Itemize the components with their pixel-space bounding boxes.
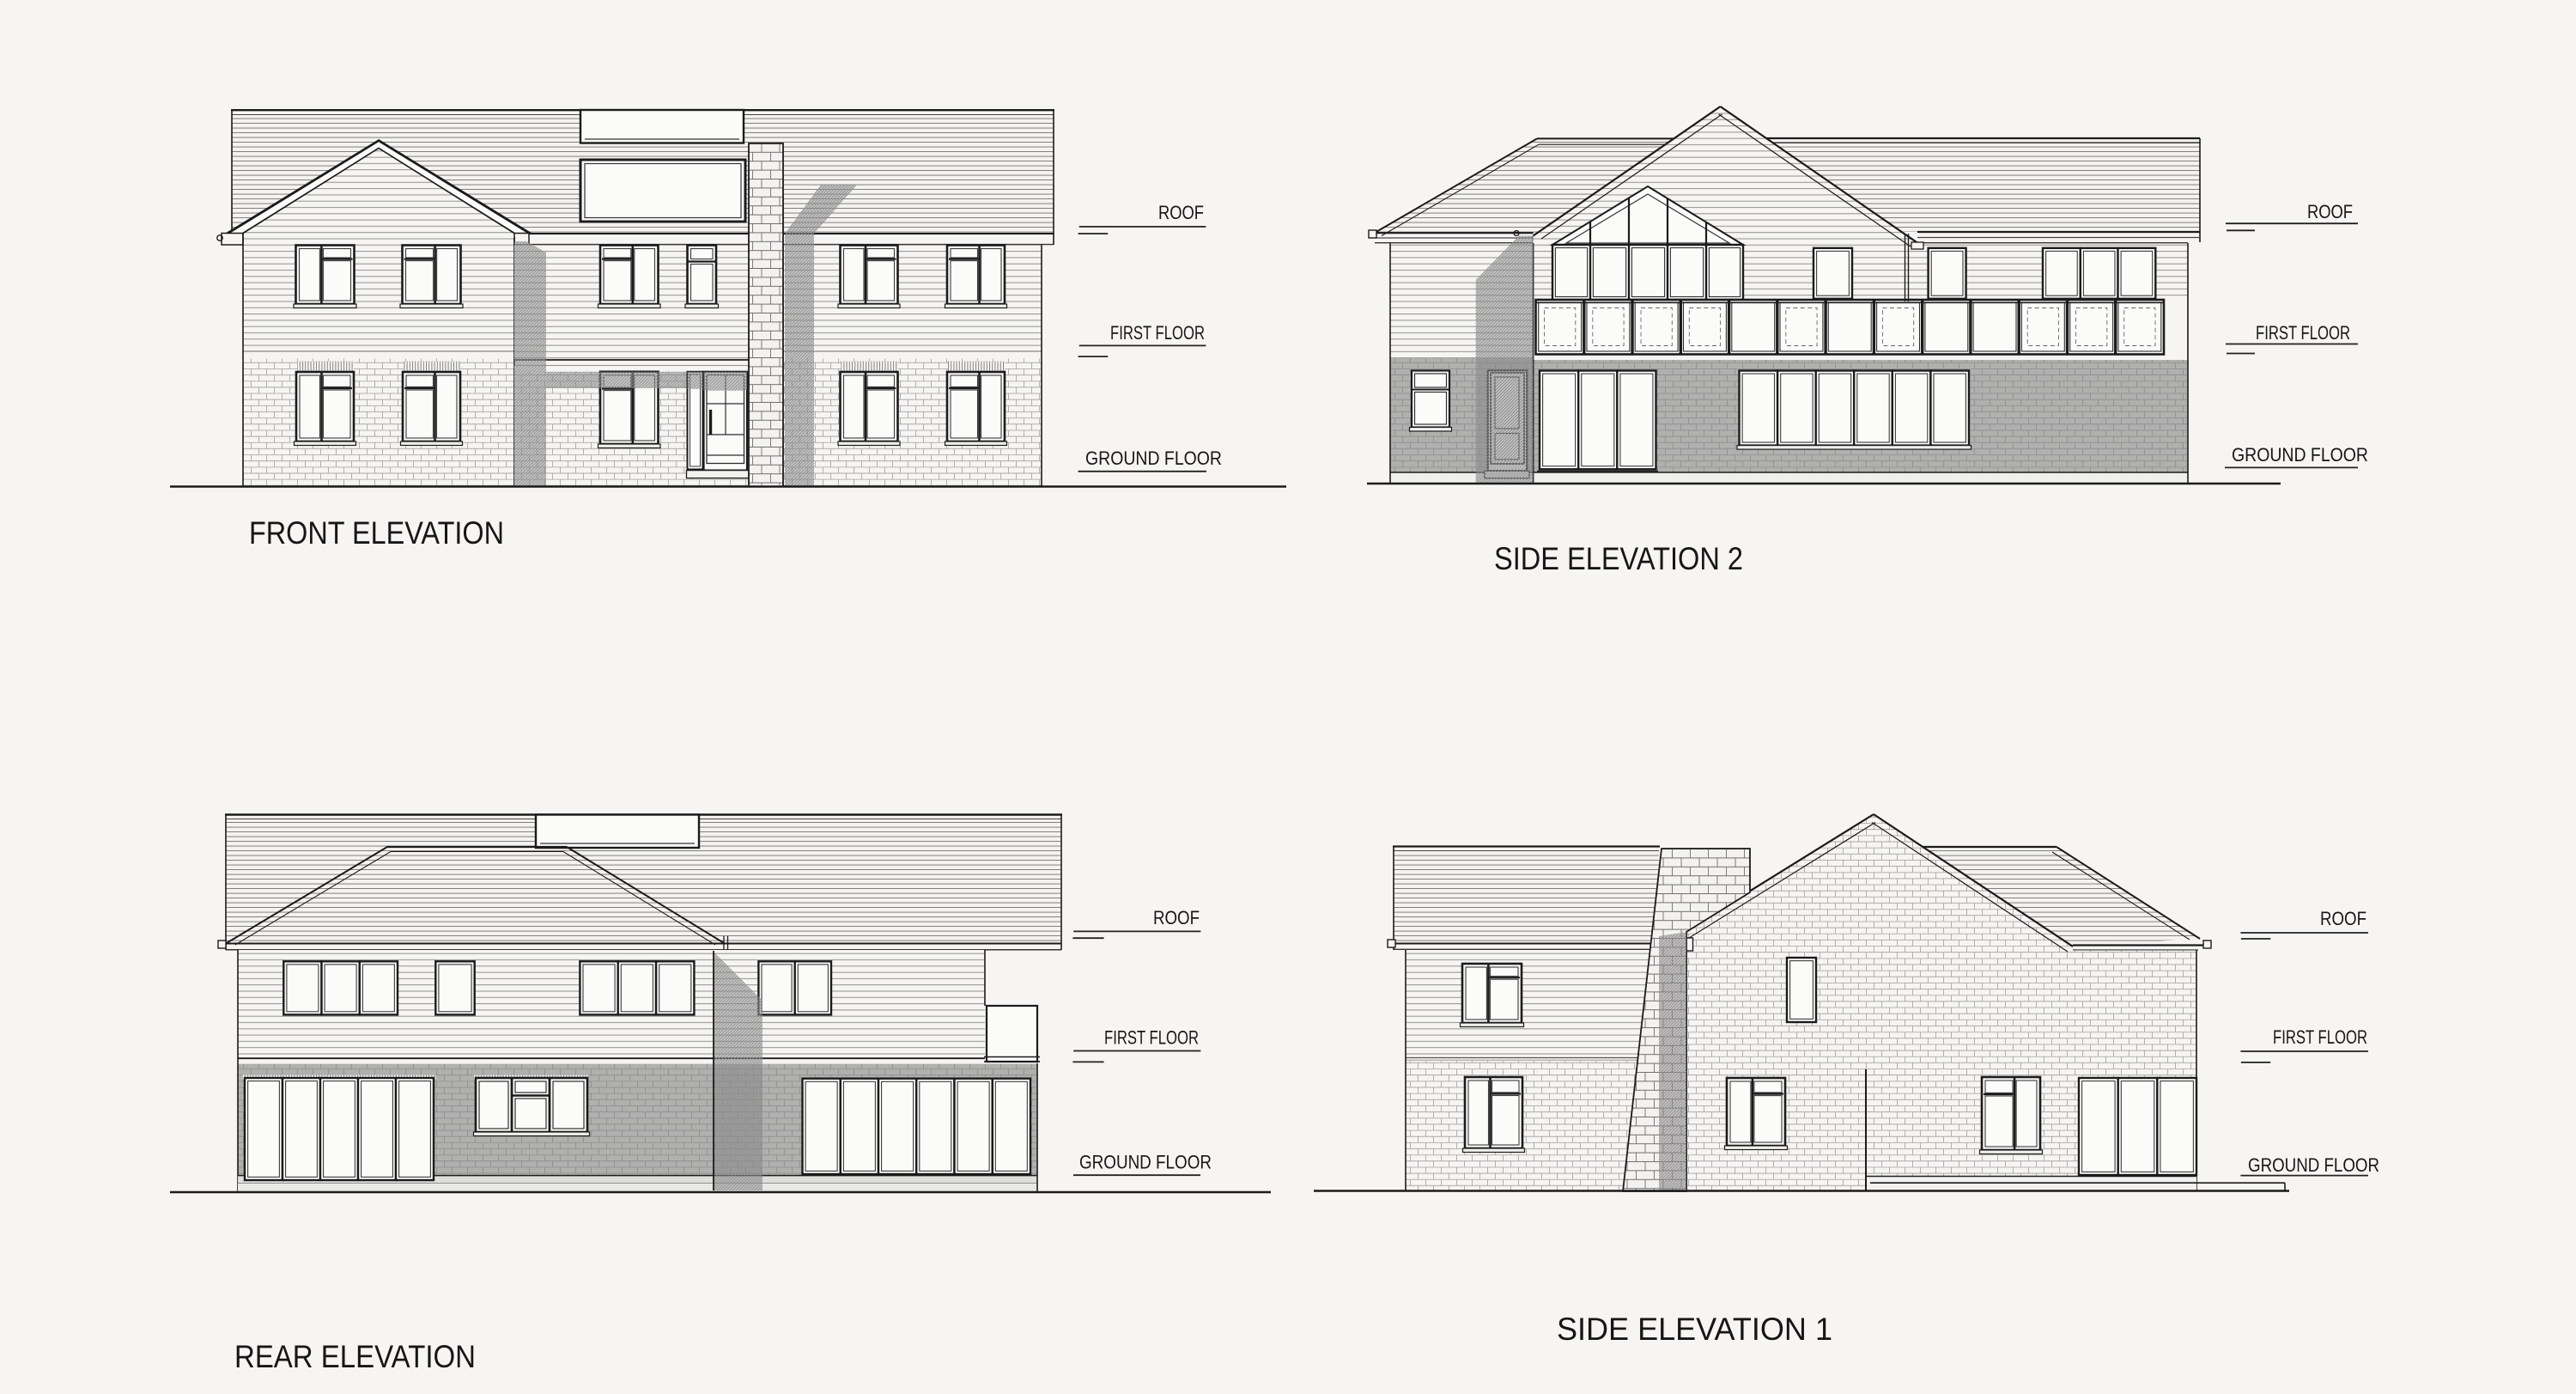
svg-text:REAR ELEVATION: REAR ELEVATION <box>234 1339 476 1374</box>
svg-text:GROUND FLOOR: GROUND FLOOR <box>2232 444 2368 466</box>
svg-text:ROOF: ROOF <box>2320 908 2366 929</box>
svg-text:GROUND FLOOR: GROUND FLOOR <box>2248 1154 2379 1176</box>
svg-text:ROOF: ROOF <box>1153 907 1200 928</box>
svg-text:SIDE ELEVATION 1: SIDE ELEVATION 1 <box>1557 1312 1832 1347</box>
svg-text:SIDE ELEVATION 2: SIDE ELEVATION 2 <box>1494 541 1743 576</box>
svg-text:FIRST FLOOR: FIRST FLOOR <box>1110 322 1205 344</box>
svg-text:GROUND FLOOR: GROUND FLOOR <box>1085 447 1222 469</box>
svg-text:GROUND FLOOR: GROUND FLOOR <box>1079 1151 1212 1172</box>
svg-text:FIRST FLOOR: FIRST FLOOR <box>2256 322 2350 344</box>
svg-text:FIRST FLOOR: FIRST FLOOR <box>2273 1026 2367 1048</box>
svg-text:ROOF: ROOF <box>2307 201 2353 222</box>
svg-text:ROOF: ROOF <box>1158 202 1204 223</box>
svg-text:FRONT ELEVATION: FRONT ELEVATION <box>249 515 504 551</box>
svg-text:FIRST FLOOR: FIRST FLOOR <box>1104 1027 1199 1049</box>
